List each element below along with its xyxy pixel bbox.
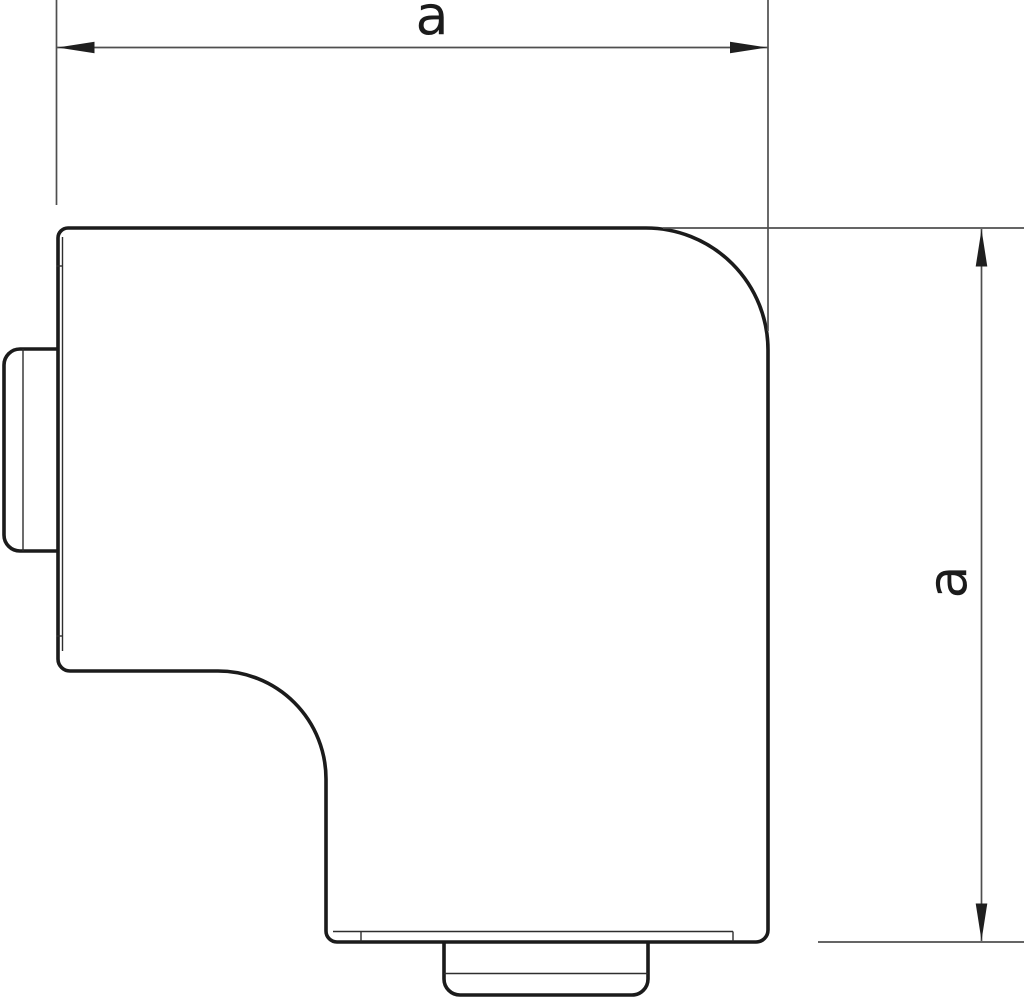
technical-drawing: a a [0,0,1024,998]
dimension-labels-group: a a [415,0,979,599]
right-dim-arrowhead-down [976,904,988,941]
top-dim-arrowhead-right [730,42,767,54]
dimension-lines-group [57,0,1024,942]
top-dim-arrowhead-left [58,42,95,54]
left-coupler-tab [4,349,57,551]
right-dimension-label: a [916,565,979,598]
part-outline [58,228,768,942]
arrowheads-group [58,42,988,941]
bottom-coupler-tab [444,943,648,996]
edge-detail-group [23,237,733,974]
part-body-group [4,228,768,995]
drawing-canvas: a a [0,0,1024,998]
top-dimension-label: a [415,0,448,47]
right-dim-arrowhead-up [976,230,988,267]
